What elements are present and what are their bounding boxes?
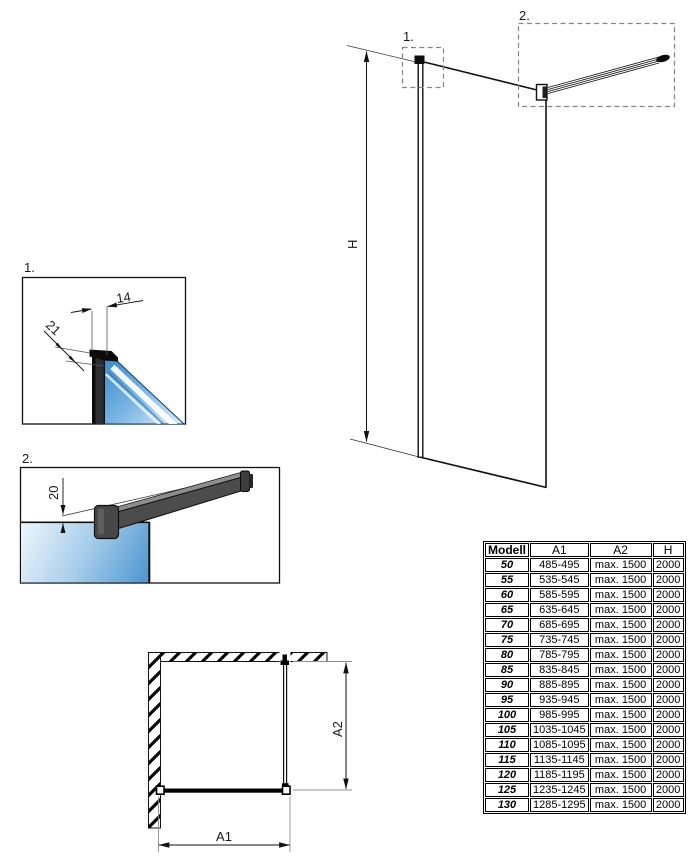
glass-panel-outline [420, 62, 548, 488]
plan-support-bar [284, 665, 287, 787]
value-cell: 2000 [653, 753, 684, 767]
technical-drawing-canvas: H 1. 2. 1. [0, 0, 700, 862]
height-dimension: H [345, 52, 367, 442]
table-row: 65635-645max. 15002000 [485, 603, 684, 617]
table-row: 55535-545max. 15002000 [485, 573, 684, 587]
table-row: 1251235-1245max. 15002000 [485, 783, 684, 797]
model-cell: 60 [485, 588, 529, 602]
value-cell: 985-995 [530, 708, 589, 722]
model-cell: 95 [485, 693, 529, 707]
header-h: H [653, 543, 684, 557]
value-cell: 2000 [653, 588, 684, 602]
table-row: 80785-795max. 15002000 [485, 648, 684, 662]
table-row: 50485-495max. 15002000 [485, 558, 684, 572]
plan-dim-a1-label: A1 [216, 829, 232, 844]
value-cell: 2000 [653, 708, 684, 722]
value-cell: 685-695 [530, 618, 589, 632]
detail-2-label: 2. [22, 451, 33, 466]
main-callout-2-label: 2. [519, 8, 530, 23]
model-cell: 90 [485, 678, 529, 692]
value-cell: 635-645 [530, 603, 589, 617]
wall-profile [415, 56, 425, 459]
value-cell: max. 1500 [590, 783, 652, 797]
value-cell: max. 1500 [590, 708, 652, 722]
value-cell: 885-895 [530, 678, 589, 692]
value-cell: max. 1500 [590, 573, 652, 587]
header-a1: A1 [530, 543, 589, 557]
model-cell: 75 [485, 633, 529, 647]
value-cell: max. 1500 [590, 753, 652, 767]
value-cell: max. 1500 [590, 738, 652, 752]
plan-top-wall [161, 652, 328, 662]
table-row: 100985-995max. 15002000 [485, 708, 684, 722]
value-cell: 2000 [653, 723, 684, 737]
detail-2-dim-20-label: 20 [46, 486, 61, 500]
value-cell: max. 1500 [590, 693, 652, 707]
plan-dim-a2-label: A2 [330, 721, 345, 737]
value-cell: max. 1500 [590, 618, 652, 632]
value-cell: max. 1500 [590, 648, 652, 662]
value-cell: 2000 [653, 738, 684, 752]
plan-dim-a1: A1 [159, 829, 290, 845]
glass-corner-bracket [537, 85, 548, 101]
main-callout-1-label: 1. [403, 29, 414, 44]
size-table: Modell A1 A2 H 50485-495max. 15002000555… [483, 541, 686, 814]
value-cell: 2000 [653, 783, 684, 797]
value-cell: 2000 [653, 573, 684, 587]
model-cell: 85 [485, 663, 529, 677]
table-row: 95935-945max. 15002000 [485, 693, 684, 707]
model-cell: 65 [485, 603, 529, 617]
table-row: 90885-895max. 15002000 [485, 678, 684, 692]
model-cell: 120 [485, 768, 529, 782]
value-cell: max. 1500 [590, 723, 652, 737]
value-cell: 2000 [653, 633, 684, 647]
header-modell: Modell [485, 543, 529, 557]
value-cell: max. 1500 [590, 678, 652, 692]
value-cell: 1085-1095 [530, 738, 589, 752]
model-cell: 80 [485, 648, 529, 662]
size-table-header-row: Modell A1 A2 H [485, 543, 684, 557]
detail-2-glass [21, 522, 150, 583]
value-cell: max. 1500 [590, 603, 652, 617]
value-cell: 485-495 [530, 558, 589, 572]
value-cell: 1285-1295 [530, 798, 589, 812]
model-cell: 105 [485, 723, 529, 737]
value-cell: 2000 [653, 558, 684, 572]
model-cell: 125 [485, 783, 529, 797]
detail-2-bar-wall-plate [241, 471, 250, 492]
value-cell: 1185-1195 [530, 768, 589, 782]
model-cell: 50 [485, 558, 529, 572]
model-cell: 55 [485, 573, 529, 587]
model-cell: 100 [485, 708, 529, 722]
detail-view-2: 2. 20 [21, 451, 280, 583]
value-cell: 835-845 [530, 663, 589, 677]
header-a2: A2 [590, 543, 652, 557]
plan-glass-panel [157, 783, 291, 794]
value-cell: 585-595 [530, 588, 589, 602]
profile-top-cap [415, 56, 425, 65]
plan-glass-left-cap [157, 786, 165, 794]
value-cell: max. 1500 [590, 663, 652, 677]
table-row: 85835-845max. 15002000 [485, 663, 684, 677]
value-cell: 2000 [653, 648, 684, 662]
model-cell: 110 [485, 738, 529, 752]
value-cell: max. 1500 [590, 798, 652, 812]
bar-wall-mount [655, 53, 670, 63]
model-cell: 70 [485, 618, 529, 632]
height-extension-lines [347, 46, 421, 458]
value-cell: 935-945 [530, 693, 589, 707]
detail-2-glass-clamp [95, 506, 119, 539]
table-row: 70685-695max. 15002000 [485, 618, 684, 632]
value-cell: 2000 [653, 663, 684, 677]
main-elevation-view: H 1. 2. [345, 8, 675, 488]
table-row: 1151135-1145max. 15002000 [485, 753, 684, 767]
value-cell: 1235-1245 [530, 783, 589, 797]
value-cell: 1035-1045 [530, 723, 589, 737]
table-row: 60585-595max. 15002000 [485, 588, 684, 602]
plan-extension-lines [159, 662, 353, 853]
table-row: 75735-745max. 15002000 [485, 633, 684, 647]
value-cell: 2000 [653, 603, 684, 617]
value-cell: 2000 [653, 768, 684, 782]
table-row: 1101085-1095max. 15002000 [485, 738, 684, 752]
value-cell: 2000 [653, 678, 684, 692]
value-cell: 735-745 [530, 633, 589, 647]
support-bar [548, 57, 659, 94]
value-cell: 2000 [653, 693, 684, 707]
size-table-wrap: Modell A1 A2 H 50485-495max. 15002000555… [483, 541, 686, 814]
table-row: 1301285-1295max. 15002000 [485, 798, 684, 812]
table-row: 1051035-1045max. 15002000 [485, 723, 684, 737]
value-cell: 535-545 [530, 573, 589, 587]
value-cell: max. 1500 [590, 768, 652, 782]
value-cell: max. 1500 [590, 633, 652, 647]
detail-1-label: 1. [24, 260, 35, 275]
detail-1-dim-14-label: 14 [115, 289, 131, 306]
value-cell: 1135-1145 [530, 753, 589, 767]
table-row: 1201185-1195max. 15002000 [485, 768, 684, 782]
plan-dim-a2: A2 [330, 663, 346, 789]
value-cell: max. 1500 [590, 588, 652, 602]
model-cell: 130 [485, 798, 529, 812]
detail-view-1: 1. 14 21 [23, 260, 186, 437]
plan-view: A2 A1 [149, 652, 353, 852]
value-cell: 2000 [653, 618, 684, 632]
model-cell: 115 [485, 753, 529, 767]
value-cell: max. 1500 [590, 558, 652, 572]
value-cell: 2000 [653, 798, 684, 812]
value-cell: 785-795 [530, 648, 589, 662]
plan-glass-right-cap [283, 786, 291, 794]
height-dimension-label: H [345, 240, 360, 249]
